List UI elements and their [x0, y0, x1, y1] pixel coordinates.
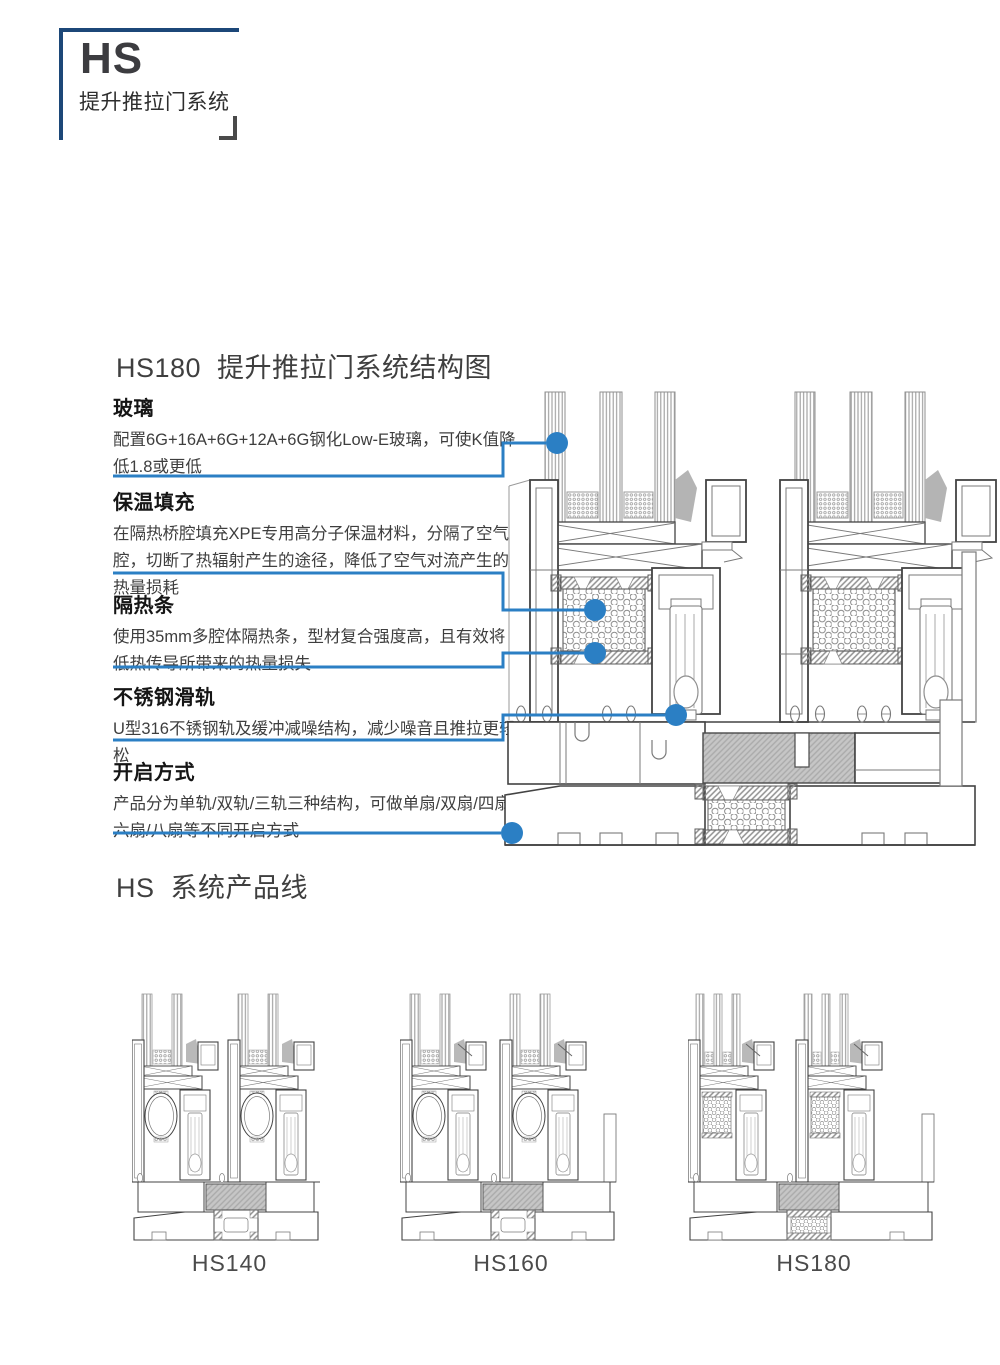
- product-label-hs180: HS180: [688, 1250, 940, 1277]
- brand-subtitle: 提升推拉门系统: [79, 86, 230, 116]
- product-diagram-hs160: [400, 992, 622, 1244]
- product-label-hs160: HS160: [400, 1250, 622, 1277]
- product-diagram-hs180: [688, 992, 940, 1244]
- brand-bracket-top-line: [59, 28, 239, 32]
- products-section-title: HS 系统产品线: [116, 866, 308, 905]
- structure-section-title: HS180 提升推拉门系统结构图: [116, 346, 492, 385]
- brand-bracket-left-line: [59, 28, 63, 140]
- catalog-page: HS 提升推拉门系统 HS180 提升推拉门系统结构图 玻璃 配置6G+16A+…: [0, 0, 1000, 1365]
- brand-title: HS: [80, 34, 143, 84]
- product-label-hs140: HS140: [132, 1250, 327, 1277]
- structure-cross-section-diagram: [95, 385, 1000, 860]
- brand-corner-mark-h: [219, 136, 237, 140]
- product-diagram-hs140: [132, 992, 327, 1244]
